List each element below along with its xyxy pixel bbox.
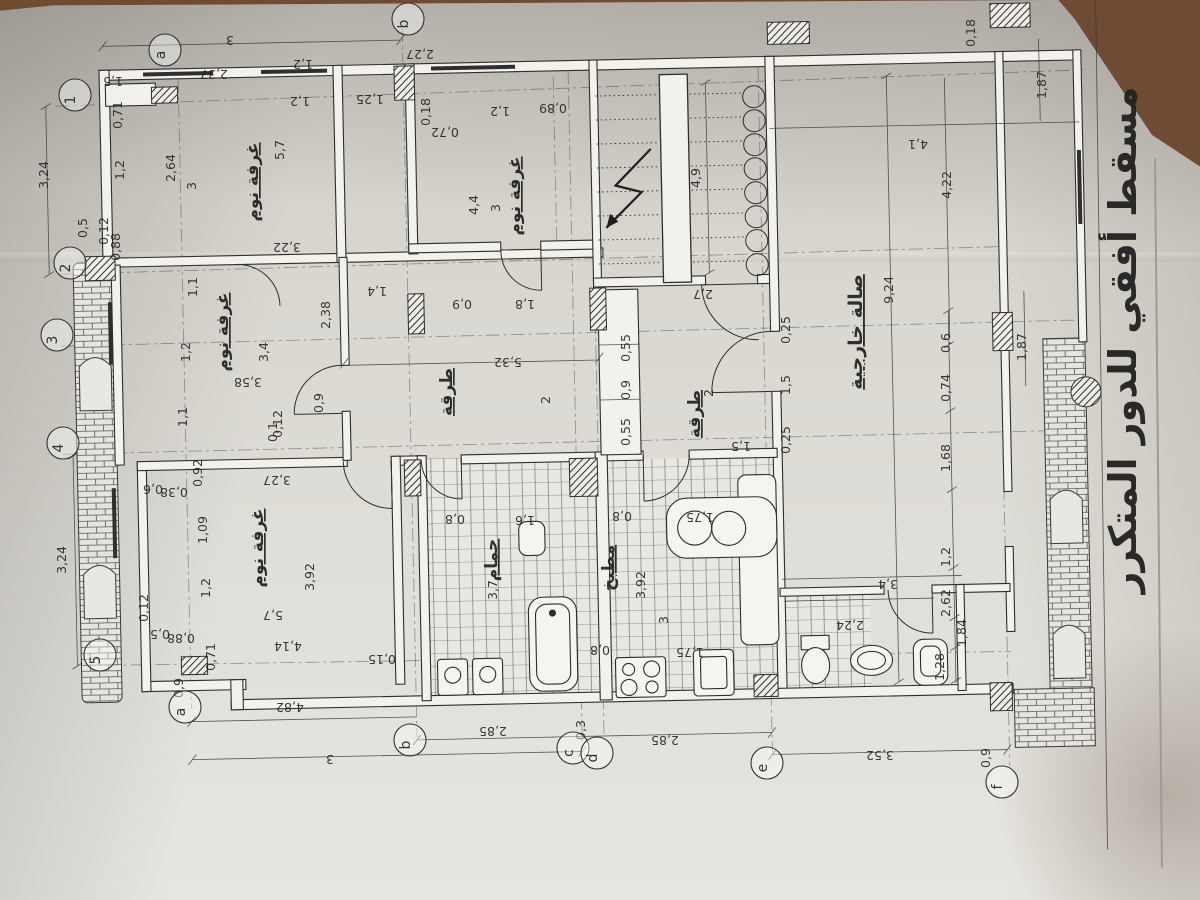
washing-machine-2	[472, 658, 503, 695]
sheet-title: مسقط أفقي للدور المتكرر	[1098, 87, 1146, 596]
stove	[615, 657, 666, 698]
grid-bubble-label: a	[173, 708, 189, 717]
dimension-label: 3,27	[263, 473, 291, 488]
grid-bubble	[581, 737, 613, 769]
dimension-label: 0,8	[445, 512, 465, 527]
grid-bubble-label: b	[398, 740, 414, 749]
dimension-label: 3,22	[273, 240, 301, 255]
dimension-label: 0,25	[778, 426, 793, 454]
dimension-label: 2,62	[938, 589, 953, 617]
grid-bubble	[47, 427, 79, 459]
dimension-label: 1,84	[954, 619, 969, 647]
dimension-label: 1,2	[293, 57, 313, 72]
dimension-label: 0,55	[618, 418, 633, 446]
grid-bubble-label: a	[153, 51, 169, 60]
grid-bubble-label: 5	[88, 656, 104, 665]
dimension-label: 2	[538, 396, 553, 404]
dimension-label: 1,87	[1014, 333, 1029, 361]
dimension-label: 1,25	[356, 92, 384, 107]
dimension-label: 0,6	[143, 482, 163, 497]
grid-bubble	[394, 724, 426, 756]
dimension-label: 4,9	[688, 168, 703, 188]
dimension-label: 2,27	[406, 47, 434, 62]
dimension-label: 1,68	[938, 444, 953, 472]
dimension-label: 0,89	[539, 101, 567, 116]
dimension-label: 1,1	[185, 277, 200, 297]
dimension-label: 2,24	[836, 618, 864, 633]
photo-of-floor-plan: 31,52,371,21,21,252,270,181,20,890,720,1…	[0, 0, 1200, 900]
dimension-label: 1,5	[778, 375, 793, 395]
dimension-label: 3	[226, 33, 234, 48]
toilet	[801, 647, 830, 684]
dimension-label: 0,9	[618, 380, 633, 400]
dimension-label: 5,32	[494, 355, 522, 370]
grid-bubble-label: e	[755, 764, 771, 773]
dimension-label: 5,7	[263, 608, 283, 623]
dimension-label: 0,5	[150, 627, 170, 642]
grid-bubble	[84, 639, 116, 671]
dimension-label: 1,28	[932, 653, 947, 681]
dimension-label: 4,22	[939, 171, 954, 199]
grid-bubble-label: 3	[45, 336, 61, 345]
dimension-label: 1,2	[490, 104, 510, 119]
grid-bubble-label: 4	[51, 443, 67, 452]
washing-machine	[437, 659, 468, 696]
dimension-label: 3	[184, 182, 199, 190]
grid-bubble-label: b	[396, 19, 412, 28]
grid-bubble	[392, 3, 424, 35]
dimension-label: 0,15	[368, 652, 396, 667]
dimension-label: 0,71	[110, 101, 125, 129]
grid-bubble	[54, 247, 86, 279]
wc-fixtures	[801, 633, 948, 688]
dimension-label: 2,64	[163, 154, 178, 182]
dimension-label: 0,1	[265, 422, 280, 442]
dimension-label: 0,38	[160, 485, 188, 500]
wash-basin	[850, 645, 893, 676]
dimension-label: 0,9	[978, 748, 993, 768]
dimension-label: 0,8	[612, 509, 632, 524]
dimension-label: 0,74	[938, 374, 953, 402]
dimension-label: 2,7	[693, 287, 713, 302]
room-label: طرقة	[685, 390, 705, 438]
grid-bubble	[751, 747, 783, 779]
grid-bubble	[986, 766, 1018, 798]
dimension-label: 2,38	[318, 301, 333, 329]
dimension-label: 4,82	[276, 700, 304, 715]
staircase	[595, 72, 768, 283]
dimension-label: 5,7	[272, 140, 287, 160]
room-label: طرقة	[437, 368, 457, 416]
dimension-label: 3,58	[234, 375, 262, 390]
dimension-label: 0,18	[418, 98, 433, 126]
dimension-label: 2,37	[200, 67, 228, 82]
dimension-label: 1,2	[938, 547, 953, 567]
dimension-label: 4,14	[274, 639, 302, 654]
floor-plan-drawing: 31,52,371,21,21,252,270,181,20,890,720,1…	[0, 0, 1200, 900]
grid-bubble-label: 1	[63, 96, 79, 105]
dimension-label: 3,52	[866, 748, 894, 763]
dimension-label: 3,92	[302, 563, 317, 591]
room-label: غرفة نوم	[213, 292, 233, 371]
dimension-label: 3,24	[54, 546, 69, 574]
grid-bubble-label: c	[561, 749, 577, 757]
grid-bubble	[149, 34, 181, 66]
dimension-label: 1,5	[731, 439, 751, 454]
dimension-label: 4,4	[466, 195, 481, 215]
room-label: غرفة نوم	[248, 508, 268, 587]
room-label: حمام	[482, 539, 502, 582]
round-column	[1071, 377, 1102, 408]
dimension-label: 4,1	[908, 137, 928, 152]
dimension-label: 0,9	[452, 297, 472, 312]
dimension-label: 0,88	[108, 233, 123, 261]
dimension-label: 1,8	[515, 297, 535, 312]
dimension-label: 1,5	[103, 74, 123, 89]
room-label: مطبخ	[599, 545, 619, 591]
dimension-label: 3	[326, 752, 334, 767]
room-label: غرفة نوم	[505, 156, 525, 235]
dimension-label: 0,12	[136, 594, 151, 622]
dimension-label: 1,2	[290, 94, 310, 109]
room-label: صالة خارجية	[845, 274, 867, 390]
grid-bubble-label: 2	[58, 264, 74, 273]
grid-bubble	[41, 319, 73, 351]
dimension-label: 0,8	[590, 643, 610, 658]
dimension-label: 1,75	[676, 645, 704, 660]
dimension-label: 2,85	[479, 724, 507, 739]
dimension-label: 0,5	[75, 218, 90, 238]
dimension-label: 1,2	[112, 160, 127, 180]
dimension-label: 1,09	[195, 516, 210, 544]
dimension-label: 3,4	[878, 577, 898, 592]
dimension-label: 0,6	[938, 333, 953, 353]
dimension-label: 3,24	[36, 161, 51, 189]
room-label: غرفة نوم	[243, 142, 263, 221]
dimension-label: 3,7	[485, 580, 500, 600]
dimension-label: 3,4	[256, 342, 271, 362]
dimension-label: 0,88	[167, 631, 195, 646]
dimension-label: 0,9	[311, 393, 326, 413]
kitchen-sink-counter	[666, 496, 777, 558]
dimension-label: 0,18	[963, 19, 978, 47]
grid-bubble-label: d	[585, 754, 601, 763]
dimension-label: 1,4	[367, 284, 387, 299]
dimension-label: 1,6	[515, 513, 535, 528]
grid-bubble	[169, 691, 201, 723]
dimension-label: 3	[656, 616, 671, 624]
dimension-label: 1,87	[1034, 71, 1049, 99]
dimension-label: 1,2	[178, 342, 193, 362]
dimension-label: 1,2	[198, 578, 213, 598]
dimension-label: 0,71	[203, 643, 218, 671]
stair-stringer	[659, 74, 691, 283]
dimension-label: 3,92	[633, 571, 648, 599]
dimension-label: 9,24	[881, 276, 896, 304]
dimension-label: 0,72	[431, 125, 459, 140]
dimension-label: 0,55	[618, 334, 633, 362]
dimension-label: 3	[488, 204, 503, 212]
dimension-label: 1,1	[175, 407, 190, 427]
stair-balusters	[742, 85, 768, 275]
dimension-label: 0,25	[778, 316, 793, 344]
dimension-label: 0,92	[190, 459, 205, 487]
dimension-label: 1,75	[686, 510, 714, 525]
grid-bubble	[59, 79, 91, 111]
dimension-label: 2,85	[651, 733, 679, 748]
